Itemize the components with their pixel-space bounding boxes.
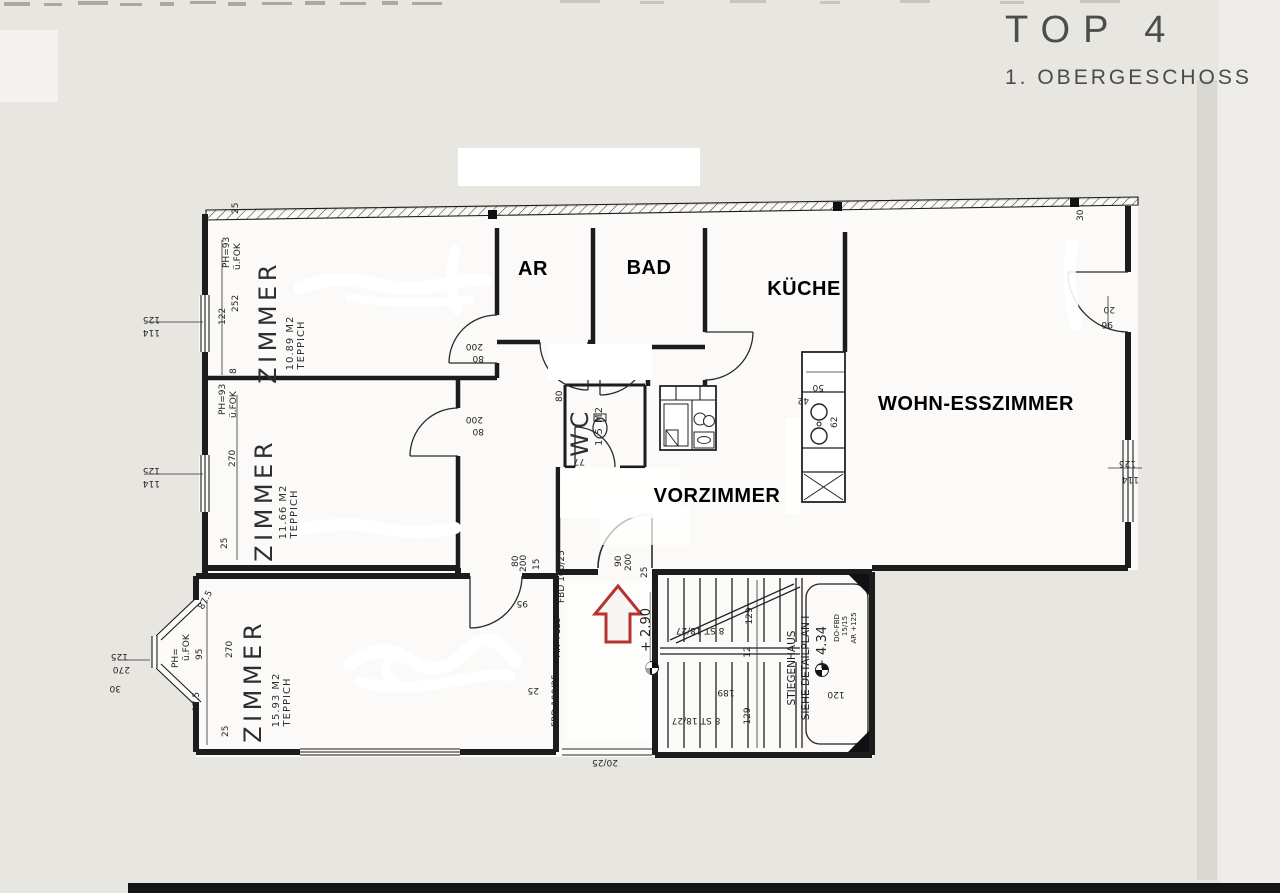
dim-label: ü.FOK	[229, 390, 239, 418]
stairwell-level-upper: + 4.34	[815, 626, 830, 670]
dim-label: PH=93	[218, 384, 228, 415]
room-label-ar: AR	[518, 258, 548, 280]
dim-label: PH=	[171, 648, 181, 668]
dim-label: 20/25	[592, 757, 618, 767]
dim-label: 125	[143, 314, 160, 324]
dim-label: 200	[466, 341, 483, 351]
plan-title: TOP 4	[1005, 9, 1178, 51]
dim-label: 50	[812, 382, 824, 392]
dim-label: 62	[830, 417, 840, 428]
dim-label: 25	[528, 685, 539, 695]
dim-label: 80	[472, 426, 484, 436]
room-label-wc: WC	[566, 407, 594, 457]
room-label-zimmer-2: ZIMMER	[250, 438, 278, 562]
dim-label: 270	[113, 664, 130, 674]
dim-label: 87.5	[192, 692, 202, 712]
dim-label: 90	[614, 555, 624, 567]
dim-label: ü.FOK	[233, 242, 243, 270]
title-block: TOP 4 1. OBERGESCHOSS	[1005, 9, 1252, 89]
room-label-kueche: KÜCHE	[767, 277, 841, 300]
room-label-zimmer-1: ZIMMER	[254, 260, 282, 384]
dim-label: 200	[624, 554, 634, 571]
stairwell-dim: 120	[827, 689, 844, 699]
stairwell-dim: 129	[745, 607, 755, 624]
room-area-wc: 1.5 M2	[594, 406, 605, 446]
dim-label: 122	[218, 308, 228, 325]
dim-label: FBD 100/25	[557, 550, 567, 603]
room-label-vorzimmer: VORZIMMER	[654, 485, 781, 507]
floor-plan-svg: TOP 4 1. OBERGESCHOSS AR BAD KÜCHE WOHN-…	[0, 0, 1280, 893]
dim-label: 200	[466, 414, 483, 424]
dim-label: 25	[640, 567, 650, 578]
dim-label: ü.FOK	[182, 633, 192, 661]
plan-subtitle: 1. OBERGESCHOSS	[1005, 66, 1252, 89]
dim-label: 200	[519, 555, 529, 572]
dim-label: AR +125	[553, 617, 563, 657]
dim-label: 252	[231, 295, 241, 312]
stairwell-level-lower: + 2.90	[639, 608, 654, 652]
dim-label: FBD 100/25	[551, 674, 561, 727]
dim-label: 95	[195, 649, 205, 660]
dim-label: 96	[1101, 319, 1113, 329]
dim-label: 80	[472, 353, 484, 363]
room-label-wohnesszimmer: WOHN-ESSZIMMER	[878, 393, 1074, 415]
room-label-bad: BAD	[627, 257, 672, 279]
stairwell-note-2: 15/15	[841, 616, 849, 636]
dim-label: 125	[1119, 458, 1136, 468]
room-floor-zimmer-2: TEPPICH	[289, 490, 300, 540]
room-area-zimmer-3: 15.93 M2	[271, 673, 282, 728]
stairwell-flight-1: 8 ST 18/27	[676, 625, 725, 635]
dim-label: 25	[221, 726, 231, 737]
room-floor-zimmer-3: TEPPICH	[282, 678, 293, 728]
stairwell-dim: 129	[743, 707, 753, 724]
dim-label: 95	[517, 598, 528, 608]
dim-label: 30	[109, 683, 121, 693]
dim-label: PH=93	[222, 237, 232, 268]
dim-label: 20	[1103, 304, 1115, 314]
dim-label: 114	[1122, 474, 1139, 484]
dim-label: 15	[532, 559, 542, 570]
stairwell-flight-2: 8 ST 18/27	[672, 715, 721, 725]
dim-label: 125	[143, 465, 160, 475]
stairwell-dim: 189	[717, 687, 734, 697]
room-floor-zimmer-1: TEPPICH	[296, 321, 307, 371]
room-area-zimmer-1: 10.89 M2	[285, 316, 296, 371]
dim-label: 125	[111, 651, 128, 661]
stairwell-note-3: AR +125	[850, 612, 858, 643]
dim-label: 25	[220, 538, 230, 549]
dim-label: 25	[231, 203, 241, 214]
stairwell-note-1: DO-FBD	[833, 614, 841, 642]
stairwell-label-1: STIEGENHAUS	[786, 630, 798, 705]
dim-label: 77	[574, 456, 585, 466]
stairwell-label-2: SIEHE DETAILPLAN I	[800, 616, 812, 721]
room-area-zimmer-2: 11.66 M2	[278, 485, 289, 540]
stairwell-dim: 12	[743, 646, 753, 657]
scan-edge-marks	[4, 1, 442, 6]
room-label-zimmer-3: ZIMMER	[239, 619, 267, 743]
dim-label: 42	[798, 395, 809, 405]
dim-label: 30	[1076, 209, 1086, 221]
dim-label: 270	[228, 450, 238, 467]
dim-label: 80	[555, 390, 565, 402]
dim-label: 8	[229, 368, 239, 374]
dim-label: 114	[143, 327, 160, 337]
scanned-floor-plan-page: TOP 4 1. OBERGESCHOSS AR BAD KÜCHE WOHN-…	[0, 0, 1280, 893]
dim-label: 114	[143, 478, 160, 488]
scan-edge-marks-right	[560, 0, 1120, 4]
dim-label: 270	[225, 641, 235, 658]
